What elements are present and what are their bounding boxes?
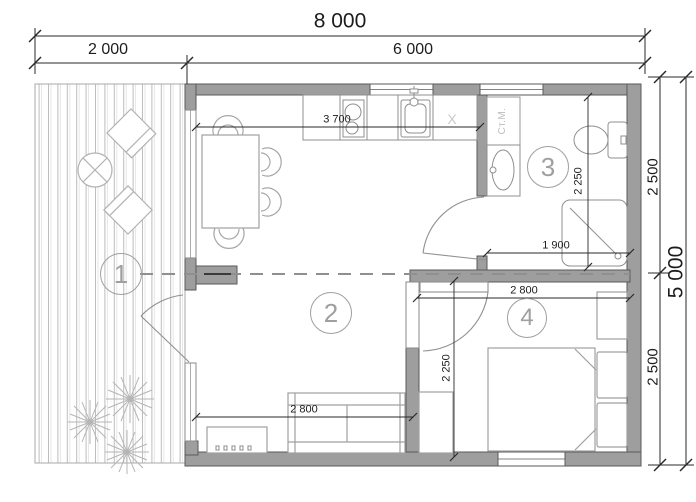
dim-bedroom-depth: 2 250 bbox=[442, 354, 453, 382]
bathroom-door bbox=[423, 197, 486, 260]
sofa bbox=[288, 393, 405, 453]
dim-terrace-width: 2 000 bbox=[88, 42, 128, 58]
toilet bbox=[574, 122, 627, 158]
dim-depth-lower: 2 500 bbox=[646, 348, 661, 386]
dining-table bbox=[202, 135, 259, 228]
room-number-bedroom: 4 bbox=[507, 298, 547, 338]
dim-bathroom-width: 1 900 bbox=[542, 241, 570, 252]
washing-machine-label: Ст.М. bbox=[498, 107, 508, 134]
dim-bathroom-depth: 2 250 bbox=[574, 167, 585, 195]
dim-total-depth: 5 000 bbox=[666, 246, 687, 299]
room-number-terrace: 1 bbox=[100, 253, 142, 295]
bathroom-sink bbox=[487, 145, 520, 196]
wardrobe bbox=[597, 292, 627, 339]
dim-kitchen-wall: 3 700 bbox=[323, 115, 351, 126]
bed bbox=[488, 348, 627, 451]
dim-house-width: 6 000 bbox=[393, 42, 433, 58]
room-number-living: 2 bbox=[310, 292, 352, 334]
shower bbox=[562, 200, 627, 266]
kitchen-x-mark: X bbox=[447, 112, 456, 126]
room-number-bathroom: 3 bbox=[527, 146, 569, 188]
dim-living-width: 2 800 bbox=[290, 405, 318, 416]
tv-stand bbox=[207, 427, 267, 453]
wall-niche bbox=[406, 282, 419, 348]
dim-bedroom-width: 2 800 bbox=[510, 286, 538, 297]
dim-total-width: 8 000 bbox=[314, 11, 367, 32]
floor-plan-geometry bbox=[0, 0, 696, 502]
round-table bbox=[78, 153, 112, 187]
floor-plan: 8 000 2 000 6 000 5 000 2 500 2 500 3 70… bbox=[0, 0, 696, 502]
dim-depth-upper: 2 500 bbox=[646, 158, 661, 196]
closet bbox=[419, 392, 453, 453]
